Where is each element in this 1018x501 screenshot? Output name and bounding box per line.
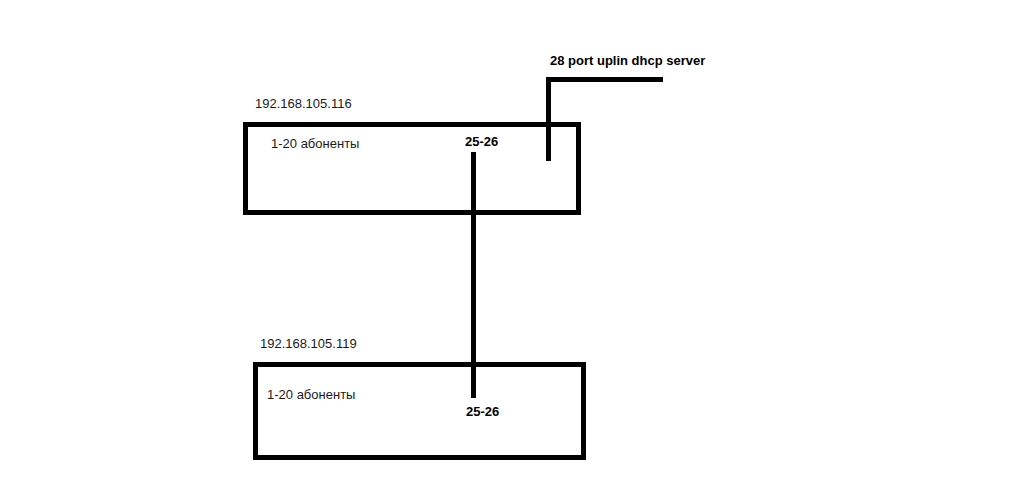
uplink-line-horizontal <box>546 77 663 82</box>
network-diagram-canvas: 28 port uplin dhcp server 192.168.105.11… <box>0 0 1018 501</box>
switch1-ip-label: 192.168.105.116 <box>255 96 352 111</box>
switch2-ip-label: 192.168.105.119 <box>260 336 357 351</box>
switch2-box <box>253 362 586 460</box>
switch1-trunk-ports-label: 25-26 <box>465 134 498 149</box>
switch2-ports-label: 1-20 абоненты <box>267 387 355 402</box>
switch2-trunk-ports-label: 25-26 <box>466 404 499 419</box>
switch1-ports-label: 1-20 абоненты <box>271 136 359 151</box>
uplink-dhcp-server-label: 28 port uplin dhcp server <box>550 53 705 68</box>
